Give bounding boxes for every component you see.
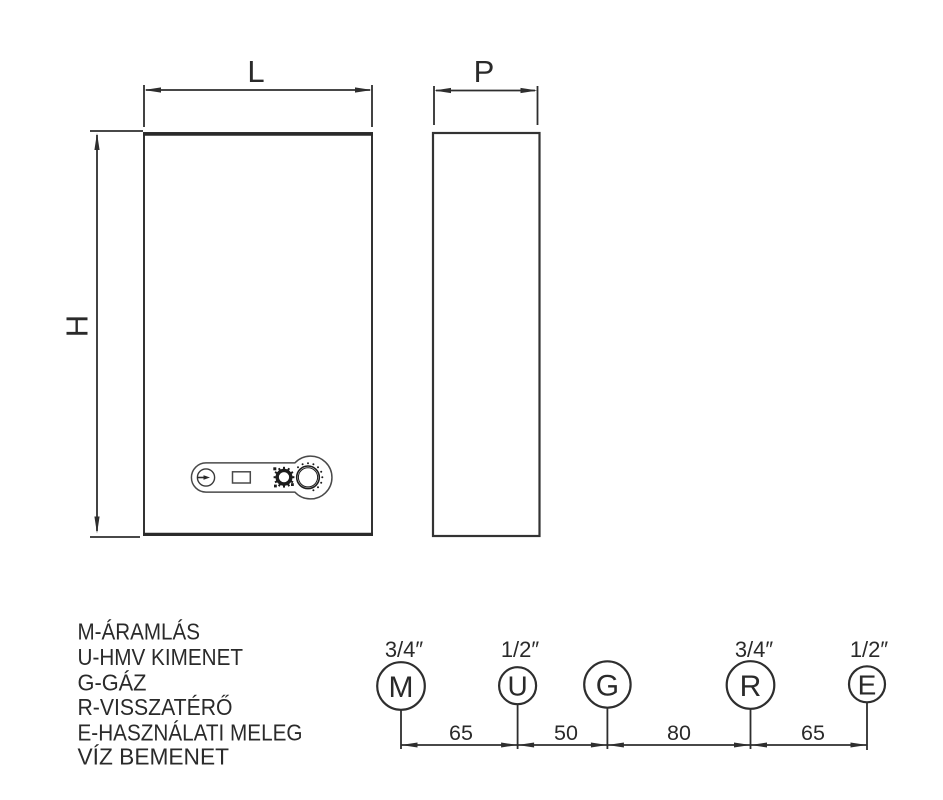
svg-text:R: R: [740, 670, 762, 703]
svg-text:M-ÁRAMLÁS: M-ÁRAMLÁS: [78, 619, 201, 645]
svg-text:R-VISSZATÉRŐ: R-VISSZATÉRŐ: [78, 694, 233, 720]
svg-text:1/2″: 1/2″: [501, 637, 540, 662]
svg-text:U-HMV KIMENET: U-HMV KIMENET: [78, 644, 244, 670]
svg-text:L: L: [247, 54, 264, 89]
svg-text:65: 65: [449, 721, 473, 745]
svg-text:3/4″: 3/4″: [735, 637, 774, 662]
svg-text:3/4″: 3/4″: [385, 637, 424, 662]
svg-text:E-HASZNÁLATI MELEG: E-HASZNÁLATI MELEG: [78, 720, 303, 746]
svg-text:U: U: [507, 671, 527, 702]
svg-text:H: H: [60, 315, 95, 337]
svg-text:G-GÁZ: G-GÁZ: [78, 670, 147, 696]
svg-text:VÍZ BEMENET: VÍZ BEMENET: [78, 744, 230, 770]
svg-text:65: 65: [801, 721, 825, 745]
svg-text:P: P: [474, 54, 495, 89]
svg-text:80: 80: [667, 721, 691, 745]
svg-text:E: E: [858, 670, 877, 701]
svg-text:G: G: [596, 670, 619, 703]
svg-text:M: M: [389, 671, 414, 704]
svg-text:1/2″: 1/2″: [850, 637, 889, 662]
svg-text:50: 50: [554, 721, 578, 745]
